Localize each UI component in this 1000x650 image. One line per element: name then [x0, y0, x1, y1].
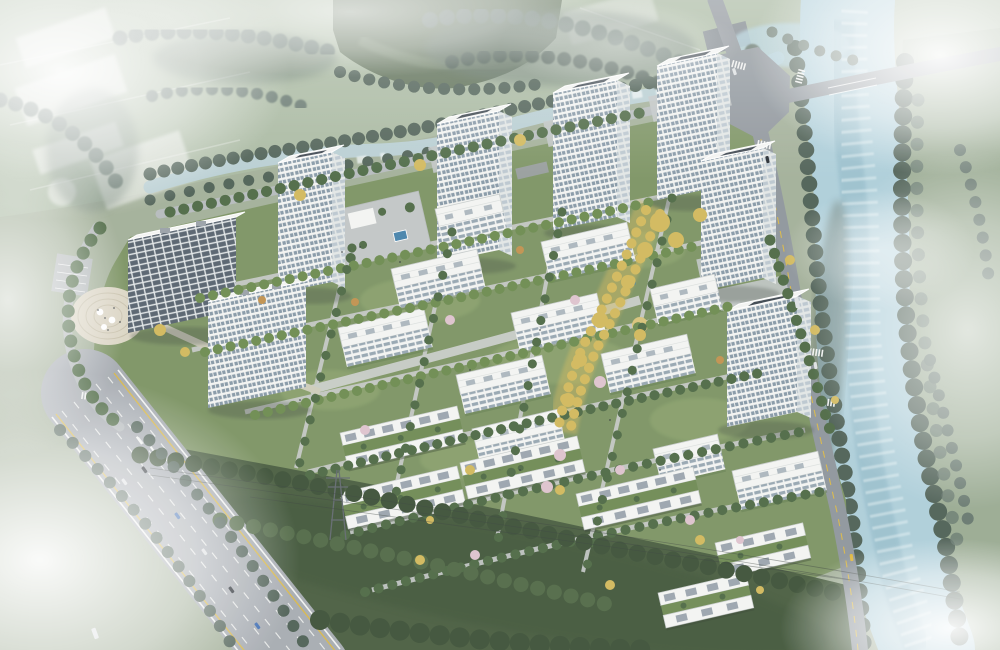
atmosphere-layer [0, 0, 1000, 650]
masterplan-aerial-rendering: Aerial bird's-eye architectural renderin… [0, 0, 1000, 650]
haze-veil [0, 0, 1000, 650]
rendering-canvas: Aerial bird's-eye architectural renderin… [0, 0, 1000, 650]
